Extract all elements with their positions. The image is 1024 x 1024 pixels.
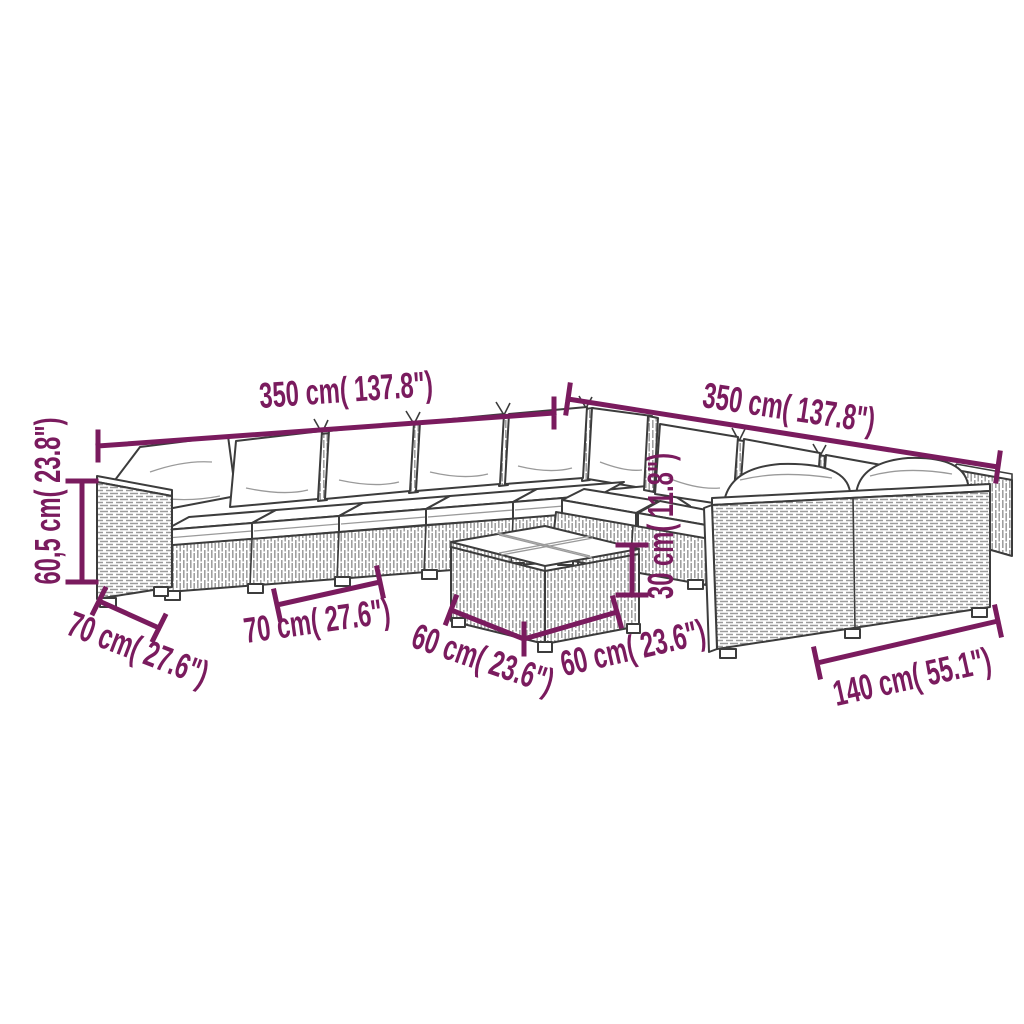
dim-label-table-height: 30 cm( 11.8") <box>640 453 682 599</box>
dim-line-seat-height <box>68 481 96 582</box>
dim-label-seat-height: 60,5 cm( 23.8") <box>27 417 69 584</box>
dimension-diagram: 350 cm( 137.8") 350 cm( 137.8") 60,5 cm(… <box>0 0 1024 1024</box>
furniture-line-art <box>0 0 1024 1024</box>
two-seater-sofa <box>704 458 990 658</box>
